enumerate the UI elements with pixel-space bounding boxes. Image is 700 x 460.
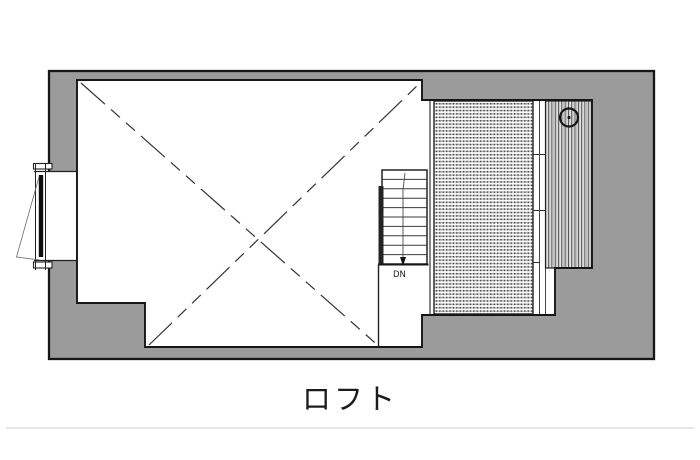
window-cap-top xyxy=(34,164,53,170)
stair-stringer xyxy=(379,186,384,264)
loft-floorplan-figure: DN ロフト xyxy=(0,0,700,460)
window-swing-line xyxy=(17,177,41,260)
plan-caption: ロフト xyxy=(0,376,700,418)
column-symbol-center-dot xyxy=(567,116,570,119)
window-cap-bottom xyxy=(34,262,53,268)
stair-direction-label: DN xyxy=(393,270,406,280)
page-divider-line xyxy=(6,427,694,429)
left-window xyxy=(17,163,77,270)
window-opening xyxy=(46,172,76,261)
tatami-floor-area xyxy=(434,101,533,314)
window-sash xyxy=(39,175,43,257)
